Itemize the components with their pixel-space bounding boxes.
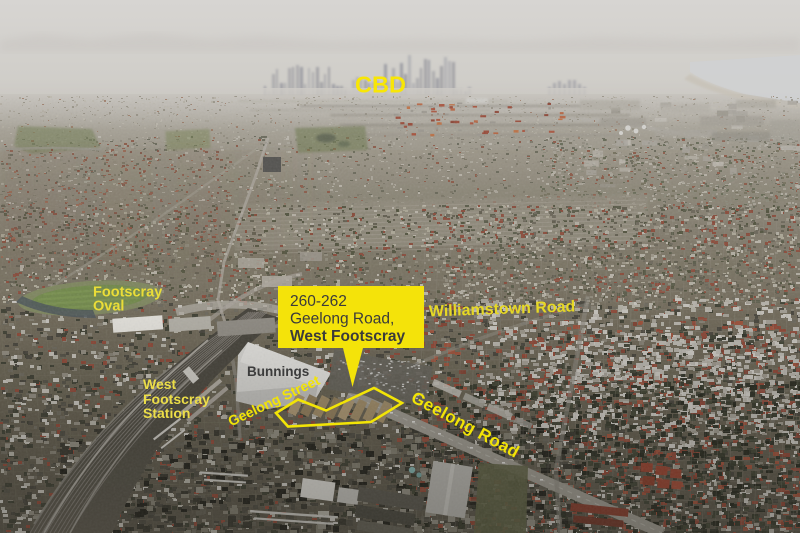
svg-text:CBD: CBD: [355, 72, 406, 98]
svg-text:Oval: Oval: [93, 299, 124, 315]
svg-text:Station: Station: [143, 405, 190, 421]
svg-text:Geelong Road,: Geelong Road,: [290, 311, 394, 328]
svg-text:West: West: [143, 376, 177, 392]
svg-text:Bunnings: Bunnings: [247, 364, 309, 379]
svg-text:260-262: 260-262: [290, 293, 347, 310]
svg-text:West Footscray: West Footscray: [290, 328, 406, 345]
